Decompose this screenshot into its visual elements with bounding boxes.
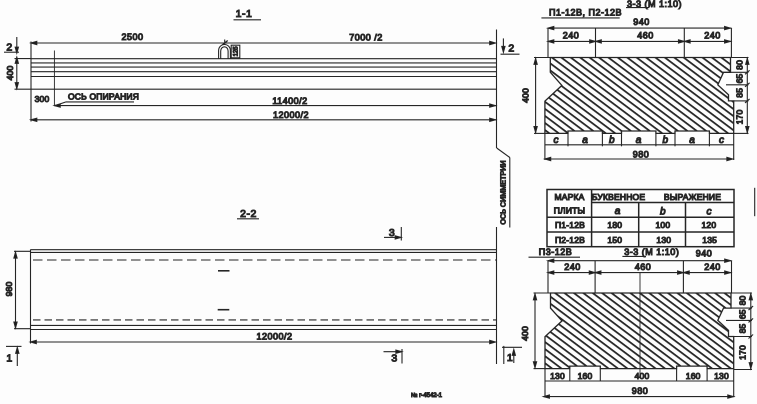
svg-text:980: 980 [633, 149, 650, 159]
svg-text:2500: 2500 [121, 32, 143, 42]
svg-text:400: 400 [521, 88, 531, 103]
svg-text:170: 170 [735, 110, 745, 125]
svg-text:120: 120 [702, 220, 717, 230]
svg-text:240: 240 [564, 262, 581, 272]
svg-text:7000 /2: 7000 /2 [349, 33, 383, 43]
svg-text:ОСЬ ОПИРАНИЯ: ОСЬ ОПИРАНИЯ [68, 92, 139, 102]
svg-text:170: 170 [738, 345, 748, 360]
svg-text:№ г-4542-1: № г-4542-1 [411, 392, 443, 399]
svg-text:240: 240 [704, 31, 721, 41]
svg-text:1: 1 [507, 352, 513, 364]
svg-text:130: 130 [656, 235, 671, 245]
svg-text:П2-12В: П2-12В [555, 235, 585, 245]
svg-text:400: 400 [520, 326, 530, 341]
svg-text:100: 100 [656, 220, 671, 230]
svg-text:460: 460 [637, 31, 654, 41]
svg-text:135: 135 [702, 235, 717, 245]
svg-text:ВЫРАЖЕНИЕ: ВЫРАЖЕНИЕ [664, 192, 721, 202]
svg-text:65: 65 [735, 74, 745, 84]
svg-text:2: 2 [508, 43, 514, 55]
svg-text:МАРКА: МАРКА [554, 192, 584, 202]
svg-text:a: a [615, 206, 621, 217]
svg-text:940: 940 [696, 249, 713, 259]
svg-text:11400/2: 11400/2 [272, 96, 307, 106]
svg-text:c: c [719, 135, 724, 146]
svg-text:3-3 (М 1:10): 3-3 (М 1:10) [624, 247, 679, 257]
svg-text:П1-12В: П1-12В [555, 220, 585, 230]
svg-text:180: 180 [607, 220, 622, 230]
svg-text:300: 300 [35, 94, 50, 104]
svg-text:400: 400 [635, 371, 650, 381]
svg-text:130: 130 [550, 371, 565, 381]
svg-text:ПЛИТЫ: ПЛИТЫ [554, 206, 586, 216]
svg-text:12000/2: 12000/2 [273, 110, 309, 120]
svg-text:65: 65 [738, 309, 748, 319]
svg-text:160: 160 [578, 371, 593, 381]
svg-text:12000/2: 12000/2 [256, 331, 292, 341]
svg-text:125: 125 [233, 46, 239, 57]
svg-text:240: 240 [563, 31, 580, 41]
svg-text:a: a [582, 135, 588, 146]
svg-text:c: c [554, 135, 559, 146]
svg-text:БУКВЕННОЕ: БУКВЕННОЕ [592, 192, 646, 202]
svg-text:1: 1 [6, 353, 12, 365]
svg-text:c: c [707, 207, 712, 218]
svg-text:80: 80 [738, 296, 748, 306]
svg-text:80: 80 [735, 60, 745, 70]
svg-text:1-1: 1-1 [236, 8, 253, 20]
svg-text:3: 3 [391, 353, 397, 365]
svg-text:a: a [689, 135, 695, 146]
svg-text:460: 460 [635, 262, 652, 272]
svg-text:П3-12В: П3-12В [539, 247, 573, 257]
svg-text:b: b [660, 207, 666, 218]
svg-text:85: 85 [735, 88, 745, 98]
svg-text:85: 85 [738, 324, 748, 334]
svg-text:980: 980 [632, 386, 649, 396]
svg-text:160: 160 [686, 371, 701, 381]
svg-text:940: 940 [633, 17, 650, 27]
svg-text:П1-12В, П2-12В: П1-12В, П2-12В [549, 8, 622, 18]
svg-text:400: 400 [5, 66, 15, 81]
svg-text:980: 980 [4, 282, 14, 297]
svg-text:150: 150 [607, 235, 622, 245]
svg-text:b: b [663, 135, 669, 146]
svg-text:a: a [636, 135, 642, 146]
svg-text:240: 240 [704, 262, 721, 272]
svg-text:ОСЬ СИММЕТРИИ: ОСЬ СИММЕТРИИ [499, 160, 508, 224]
svg-text:2-2: 2-2 [240, 208, 257, 220]
svg-text:130: 130 [714, 371, 729, 381]
svg-text:b: b [609, 135, 615, 146]
